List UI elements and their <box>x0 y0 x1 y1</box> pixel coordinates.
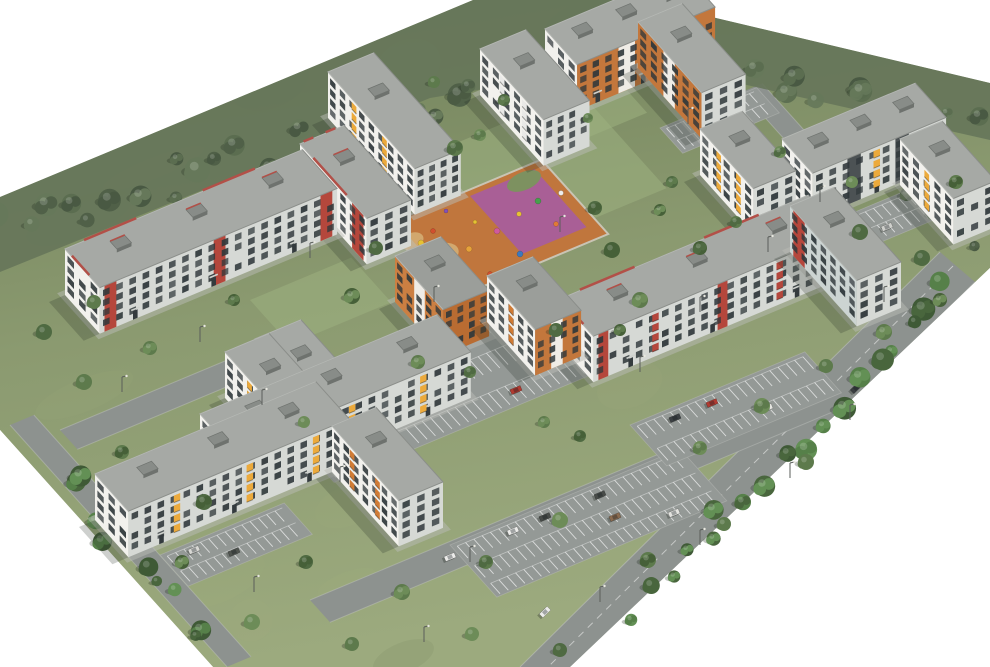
play-equipment <box>444 209 448 213</box>
play-equipment <box>494 228 500 234</box>
play-equipment <box>554 222 559 227</box>
aerial-site-plan <box>0 0 990 667</box>
architectural-aerial-rendering <box>0 0 990 667</box>
play-equipment <box>473 220 477 224</box>
play-equipment <box>431 229 436 234</box>
play-equipment <box>466 246 472 252</box>
play-equipment <box>535 198 541 204</box>
play-equipment <box>517 251 523 257</box>
play-equipment <box>559 191 564 196</box>
play-equipment <box>517 212 522 217</box>
